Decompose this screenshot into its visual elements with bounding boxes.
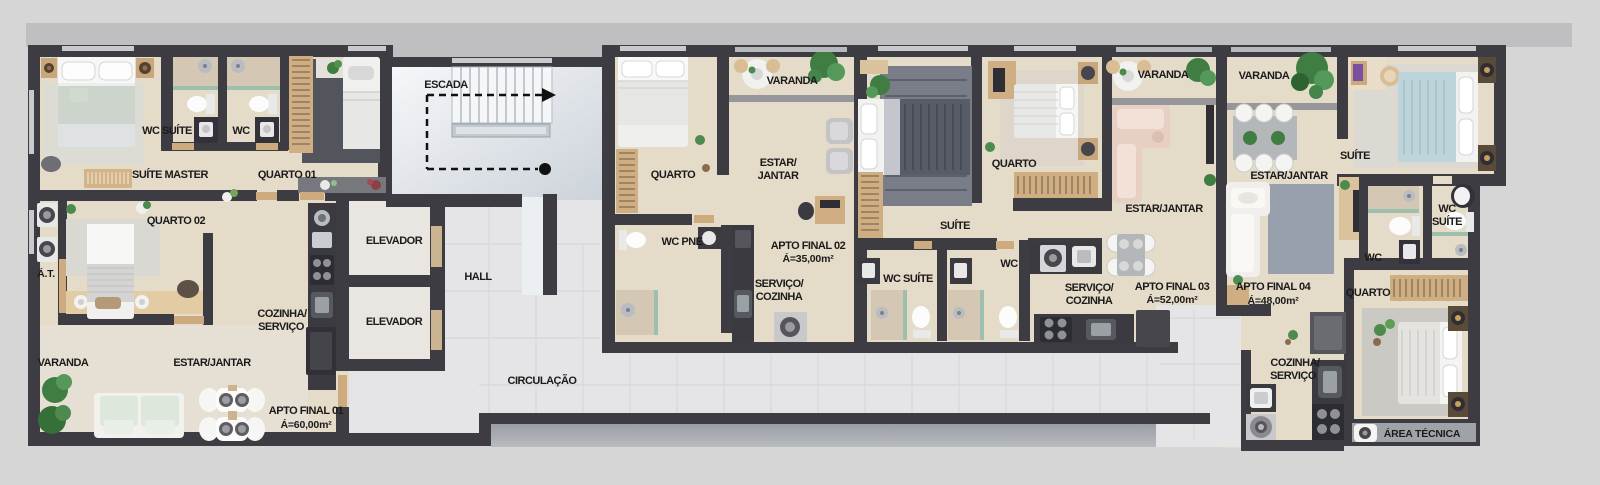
svg-text:VARANDA: VARANDA <box>767 75 818 87</box>
svg-text:APTO FINAL 03: APTO FINAL 03 <box>1135 281 1210 293</box>
svg-text:QUARTO: QUARTO <box>1346 287 1391 299</box>
svg-text:HALL: HALL <box>464 271 492 283</box>
svg-text:ELEVADOR: ELEVADOR <box>366 316 423 328</box>
svg-text:COZINHA/: COZINHA/ <box>257 308 307 320</box>
svg-text:WC SUÍTE: WC SUÍTE <box>883 272 933 285</box>
svg-text:SERVIÇO/: SERVIÇO/ <box>755 278 804 290</box>
svg-text:SUÍTE: SUÍTE <box>1432 215 1462 228</box>
svg-text:WC: WC <box>1000 258 1018 270</box>
svg-text:Á=35,00m²: Á=35,00m² <box>782 252 834 265</box>
svg-text:WC SUÍTE: WC SUÍTE <box>142 124 192 137</box>
svg-text:Á.T.: Á.T. <box>37 267 55 280</box>
svg-text:ESCADA: ESCADA <box>424 79 468 91</box>
svg-text:ESTAR/JANTAR: ESTAR/JANTAR <box>1250 170 1328 182</box>
svg-text:QUARTO: QUARTO <box>992 158 1037 170</box>
svg-text:APTO FINAL 04: APTO FINAL 04 <box>1236 281 1312 293</box>
svg-text:WC: WC <box>232 125 250 137</box>
svg-text:APTO FINAL 01: APTO FINAL 01 <box>269 405 344 417</box>
svg-text:QUARTO 01: QUARTO 01 <box>258 169 317 181</box>
svg-text:APTO FINAL 02: APTO FINAL 02 <box>771 240 846 252</box>
svg-text:COZINHA: COZINHA <box>756 291 803 303</box>
svg-text:SERVIÇO: SERVIÇO <box>1270 370 1317 382</box>
svg-text:COZINHA/: COZINHA/ <box>1270 357 1320 369</box>
svg-text:SUÍTE: SUÍTE <box>940 219 970 232</box>
svg-text:Á=60,00m²: Á=60,00m² <box>280 418 332 431</box>
svg-text:SERVIÇO: SERVIÇO <box>258 321 305 333</box>
svg-text:ESTAR/JANTAR: ESTAR/JANTAR <box>173 357 251 369</box>
svg-text:SERVIÇO/: SERVIÇO/ <box>1065 282 1114 294</box>
svg-text:QUARTO 02: QUARTO 02 <box>147 215 206 227</box>
svg-text:VARANDA: VARANDA <box>1239 70 1290 82</box>
svg-text:ESTAR/JANTAR: ESTAR/JANTAR <box>1125 203 1203 215</box>
svg-text:SUÍTE: SUÍTE <box>1340 149 1370 162</box>
svg-text:WC: WC <box>1364 252 1382 264</box>
svg-text:SUÍTE MASTER: SUÍTE MASTER <box>132 168 208 181</box>
svg-text:ESTAR/: ESTAR/ <box>760 157 797 169</box>
svg-text:JANTAR: JANTAR <box>758 170 799 182</box>
svg-text:WC PNE: WC PNE <box>662 236 703 248</box>
svg-text:WC: WC <box>1438 203 1456 215</box>
svg-text:COZINHA: COZINHA <box>1066 295 1113 307</box>
svg-text:VARANDA: VARANDA <box>1138 69 1189 81</box>
svg-text:Á=52,00m²: Á=52,00m² <box>1146 293 1198 306</box>
svg-text:VARANDA: VARANDA <box>38 357 89 369</box>
svg-text:Á=48,00m²: Á=48,00m² <box>1247 294 1299 307</box>
svg-text:QUARTO: QUARTO <box>651 169 696 181</box>
svg-text:ÁREA TÉCNICA: ÁREA TÉCNICA <box>1384 427 1461 440</box>
svg-text:CIRCULAÇÃO: CIRCULAÇÃO <box>508 374 578 387</box>
svg-text:ELEVADOR: ELEVADOR <box>366 235 423 247</box>
